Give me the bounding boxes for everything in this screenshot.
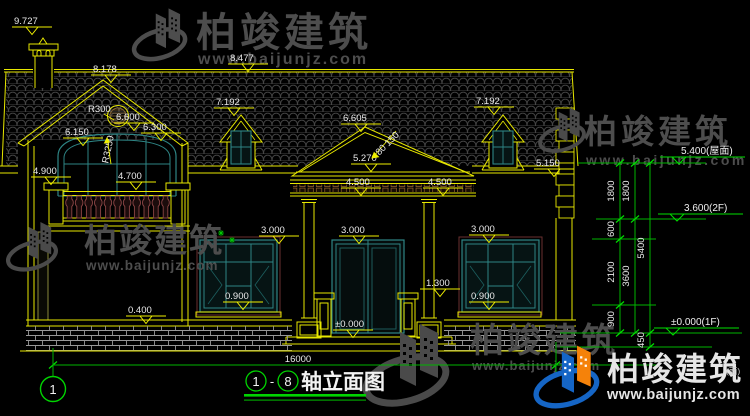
title-text: 轴立面图 [301, 370, 385, 394]
marker-left-window-head: 3.000 [261, 225, 285, 236]
title-axis-dash: - [270, 374, 274, 389]
dim-total-width: 16000 [285, 354, 311, 365]
marker-right-window-head: 3.000 [471, 224, 495, 235]
watermark-url: www.baijunjz.com [85, 258, 219, 273]
watermark-brand: 柏竣建筑 [470, 321, 618, 360]
axis-bubble-number: 1 [49, 382, 56, 397]
dim-2100: 2100 [606, 261, 617, 282]
marker-plinth-top: 0.400 [128, 305, 152, 316]
marker-main-eave: 5.150 [536, 158, 560, 169]
title-underline [244, 394, 366, 397]
dim-450: 450 [636, 332, 647, 348]
marker-round-window: R300 [88, 104, 111, 115]
marker-entablature-right: 4.500 [428, 177, 452, 188]
marker-entablature-left: 4.500 [346, 177, 370, 188]
marker-gable-center: 6.600 [116, 112, 140, 123]
watermark-url: www.baijunjz.com [606, 387, 740, 403]
marker-right-window-sill: 0.900 [471, 291, 495, 302]
elevation-drawing: 柏竣建筑 www.baijunjz.com 柏竣建筑 www.baijunjz.… [0, 0, 750, 416]
marker-right-dormer: 7.192 [476, 96, 500, 107]
marker-left-dormer: 7.192 [216, 97, 240, 108]
marker-left-gable-eave: 6.150 [65, 127, 89, 138]
level-roof: 5.400(屋面) [681, 145, 733, 157]
cad-point-marker [229, 237, 235, 243]
title-axis-start: 1 [252, 374, 259, 389]
marker-right-gable-eave: 6.300 [143, 122, 167, 133]
balusters [66, 196, 170, 218]
watermark-brand: 柏竣建筑 [584, 113, 732, 150]
dim-5400: 5400 [636, 237, 647, 258]
level-floor2: 3.600(2F) [684, 203, 727, 214]
level-markers: 5.400(屋面) 3.600(2F) ±0.000(1F) [654, 145, 745, 335]
marker-entry-level: ±0.000 [335, 319, 364, 330]
watermark-brand: 柏竣建筑 [196, 11, 372, 55]
drawing-title: 1 - 8 轴立面图 [244, 370, 385, 401]
chimney [29, 38, 58, 88]
marker-door-head: 3.000 [341, 225, 365, 236]
marker-porch-rail-post: 1.300 [426, 278, 450, 289]
dim-600: 600 [606, 221, 617, 237]
watermark-brand: 柏竣建筑 [607, 351, 743, 387]
dim-1800-inner: 1800 [606, 180, 617, 201]
marker-left-gable-ridge: 8.178 [93, 64, 117, 75]
dim-3600: 3600 [621, 265, 632, 286]
ground-label-fragment: (面) [726, 366, 740, 376]
marker-pediment-apex: 6.605 [343, 113, 367, 124]
marker-left-wing-eave: 4.900 [33, 166, 57, 177]
dim-1800-mid: 1800 [621, 180, 632, 201]
axis-bubble-1: 1 [41, 377, 66, 402]
watermark-url: www.baijunjz.com [197, 51, 368, 68]
dim-900: 900 [606, 311, 617, 327]
watermark-brand: 柏竣建筑 [84, 222, 224, 259]
porch-column-right [417, 196, 441, 338]
title-underline-2 [244, 400, 366, 401]
title-axis-end: 8 [284, 374, 291, 389]
marker-left-window-sill: 0.900 [225, 291, 249, 302]
chain-values: 1800 600 2100 900 1800 3600 5400 450 [606, 180, 647, 348]
marker-chimney-top: 9.727 [14, 16, 38, 27]
marker-balcony-rail: 4.700 [118, 171, 142, 182]
cad-elevation-canvas: 柏竣建筑 www.baijunjz.com 柏竣建筑 www.baijunjz.… [0, 0, 750, 416]
window-right [458, 237, 542, 317]
marker-main-ridge: 8.477 [230, 53, 254, 64]
watermark-bottom-right: 柏竣建筑 www.baijunjz.com (面) [532, 346, 743, 412]
level-floor1: ±0.000(1F) [671, 317, 720, 328]
